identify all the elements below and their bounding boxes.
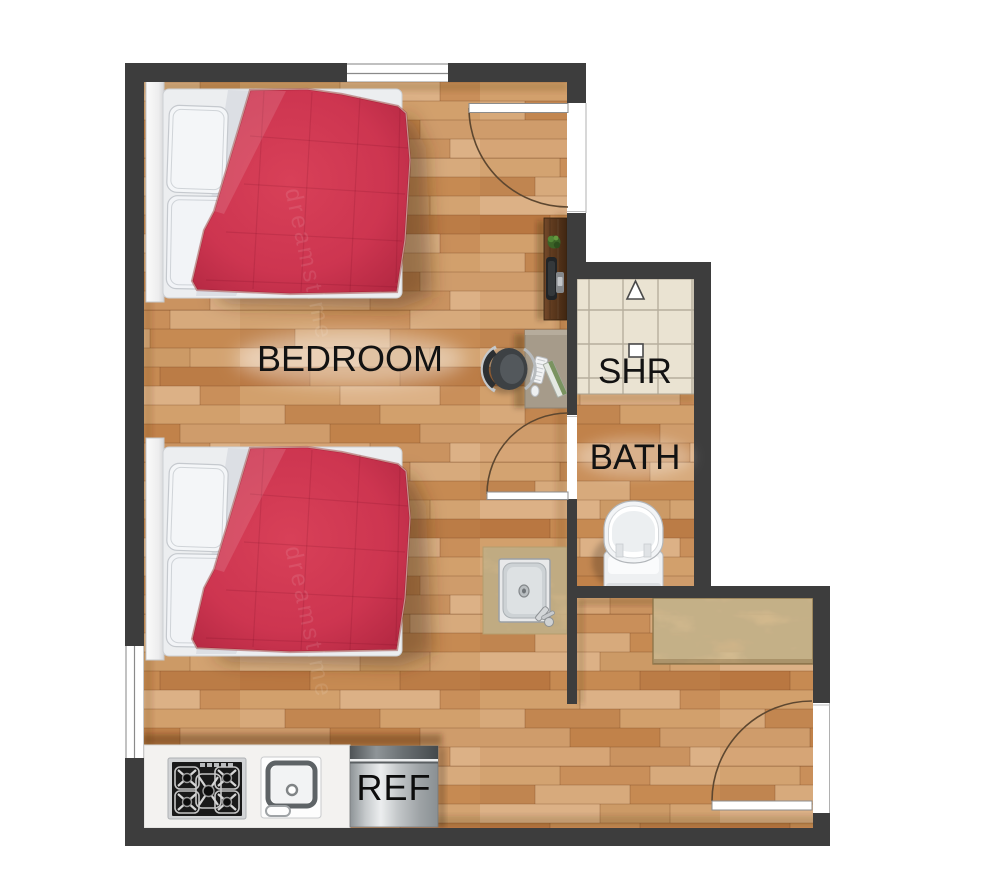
svg-text:SHR: SHR <box>598 352 672 391</box>
svg-text:REF: REF <box>357 767 432 808</box>
svg-text:BATH: BATH <box>590 438 681 477</box>
svg-text:BEDROOM: BEDROOM <box>257 338 443 379</box>
